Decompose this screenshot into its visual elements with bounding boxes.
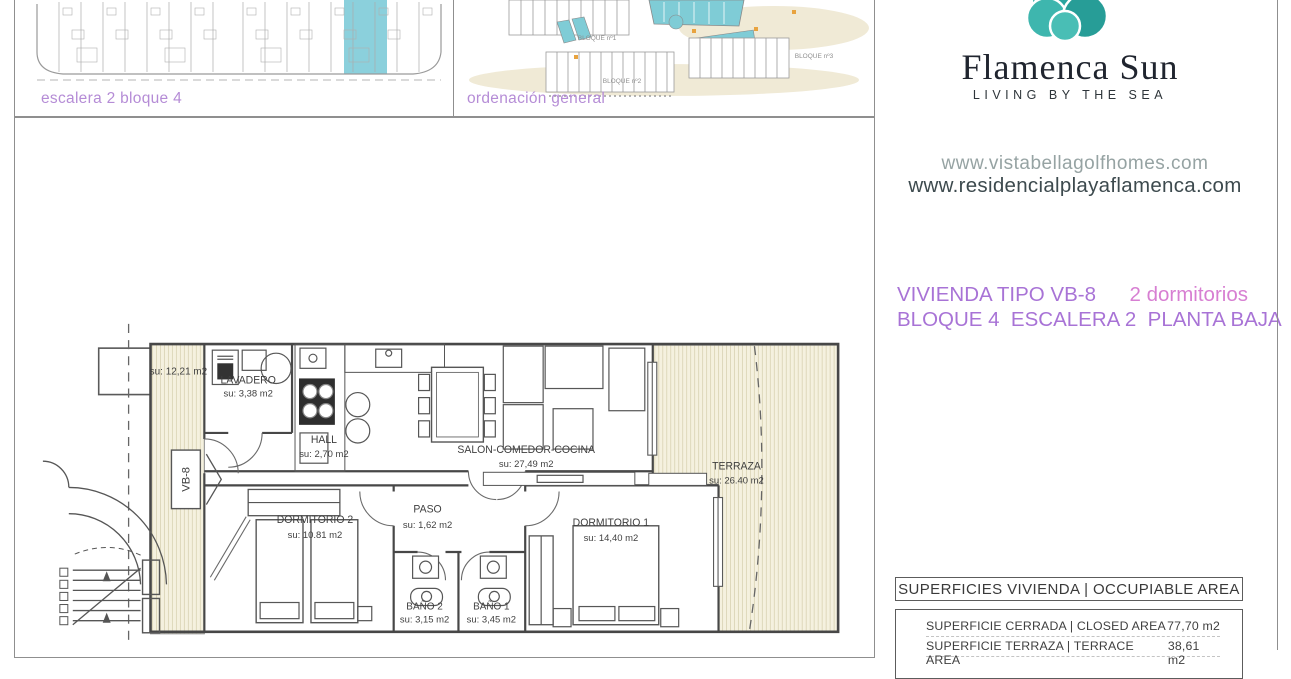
- flamenca-sun-logo-icon: [1003, 0, 1133, 50]
- tv-cabinet: [483, 472, 706, 485]
- lavadero-label: LAVADERO: [221, 374, 276, 386]
- terrace-area-value: 38,61 m2: [1168, 639, 1220, 667]
- site-label-bloque3: BLOQUE nº3: [795, 53, 834, 60]
- terraza-area: [653, 345, 838, 632]
- salon-area: su: 27,49 m2: [499, 459, 554, 470]
- block-plan-thumbnail: escalera 2 bloque 4: [14, 0, 455, 117]
- staircase: [43, 461, 167, 633]
- terrace-area-label: SUPERFICIE TERRAZA | TERRACE AREA: [926, 639, 1168, 667]
- unit-tag-marker: [171, 450, 221, 509]
- page-frame-right: [1277, 0, 1278, 650]
- bathroom-fixtures: [411, 556, 511, 605]
- block-plan-caption: escalera 2 bloque 4: [41, 90, 182, 108]
- dormitorio2-area: su: 10.81 m2: [288, 530, 343, 541]
- lavadero-area: su: 3,38 m2: [223, 389, 272, 400]
- unit-type-label: VIVIENDA TIPO VB-8: [897, 282, 1096, 307]
- terraza-label: TERRAZA: [712, 460, 761, 472]
- paso-label: PASO: [413, 504, 441, 516]
- floor-plan-panel: su: 12,21 m2 LAVADERO su: 3,38 m2 VB-8 H…: [14, 117, 875, 658]
- unit-location-label: BLOQUE 4 ESCALERA 2 PLANTA BAJA: [897, 307, 1248, 332]
- unit-bedrooms-label: 2 dormitorios: [1130, 282, 1249, 307]
- site-plan-thumbnail: BLOQUE nº1 BLOQUE nº2 BLOQUE nº3 ordenac…: [453, 0, 875, 117]
- salon-label: SALON-COMEDOR-COCINA: [457, 444, 595, 456]
- bedroom2-furniture: [248, 489, 372, 622]
- stool: [346, 419, 370, 443]
- site-block-3: [689, 38, 789, 78]
- kitchen-sink: [300, 348, 326, 368]
- dormitorio1-label: DORMITORIO 1: [573, 517, 650, 529]
- dining-table: [419, 367, 496, 442]
- highlighted-unit: [344, 0, 387, 74]
- brand-name: Flamenca Sun: [880, 46, 1260, 88]
- site-label-bloque2: BLOQUE nº2: [603, 78, 642, 85]
- stove: [299, 378, 335, 424]
- sofa-group: [503, 346, 645, 449]
- closed-area-label: SUPERFICIE CERRADA | CLOSED AREA: [926, 619, 1166, 633]
- site-plan-caption: ordenación general: [467, 90, 605, 108]
- terraza-area-label: su: 26.40 m2: [709, 475, 764, 486]
- bano1-label: BAÑO 1: [473, 600, 510, 613]
- stool: [346, 393, 370, 417]
- areas-table-header: SUPERFICIES VIVIENDA | OCCUPIABLE AREA: [895, 577, 1243, 601]
- dormitorio2-label: DORMITORIO 2: [277, 514, 354, 526]
- bano1-area: su: 3,45 m2: [467, 615, 516, 626]
- brand-tagline: LIVING BY THE SEA: [880, 88, 1260, 102]
- floor-plan-drawing: su: 12,21 m2 LAVADERO su: 3,38 m2 VB-8 H…: [15, 118, 873, 656]
- bano2-label: BAÑO 2: [406, 600, 443, 613]
- website-playa-flamenca: www.residencialplayaflamenca.com: [878, 175, 1272, 197]
- websites-block: www.vistabellagolfhomes.com www.residenc…: [878, 153, 1272, 197]
- paso-area: su: 1,62 m2: [403, 520, 452, 531]
- unit-title-block: VIVIENDA TIPO VB-8 2 dormitorios BLOQUE …: [897, 282, 1248, 332]
- site-block-2: [546, 52, 674, 92]
- hall-label: HALL: [311, 434, 337, 446]
- hall-area: su: 2,70 m2: [299, 449, 348, 460]
- unit-tag-text: VB-8: [180, 467, 192, 492]
- dormitorio1-area: su: 14,40 m2: [584, 533, 639, 544]
- website-vistabella: www.vistabellagolfhomes.com: [878, 153, 1272, 175]
- side-terrace-area-label: su: 12,21 m2: [150, 366, 208, 377]
- closed-area-value: 77,70 m2: [1167, 619, 1220, 633]
- site-label-bloque1: BLOQUE nº1: [578, 35, 617, 42]
- table-row: SUPERFICIE TERRAZA | TERRACE AREA 38,61 …: [926, 639, 1220, 657]
- areas-table: SUPERFICIE CERRADA | CLOSED AREA 77,70 m…: [895, 609, 1243, 679]
- table-row: SUPERFICIE CERRADA | CLOSED AREA 77,70 m…: [926, 619, 1220, 637]
- adjacent-structure: [99, 348, 151, 394]
- bano2-area: su: 3,15 m2: [400, 615, 449, 626]
